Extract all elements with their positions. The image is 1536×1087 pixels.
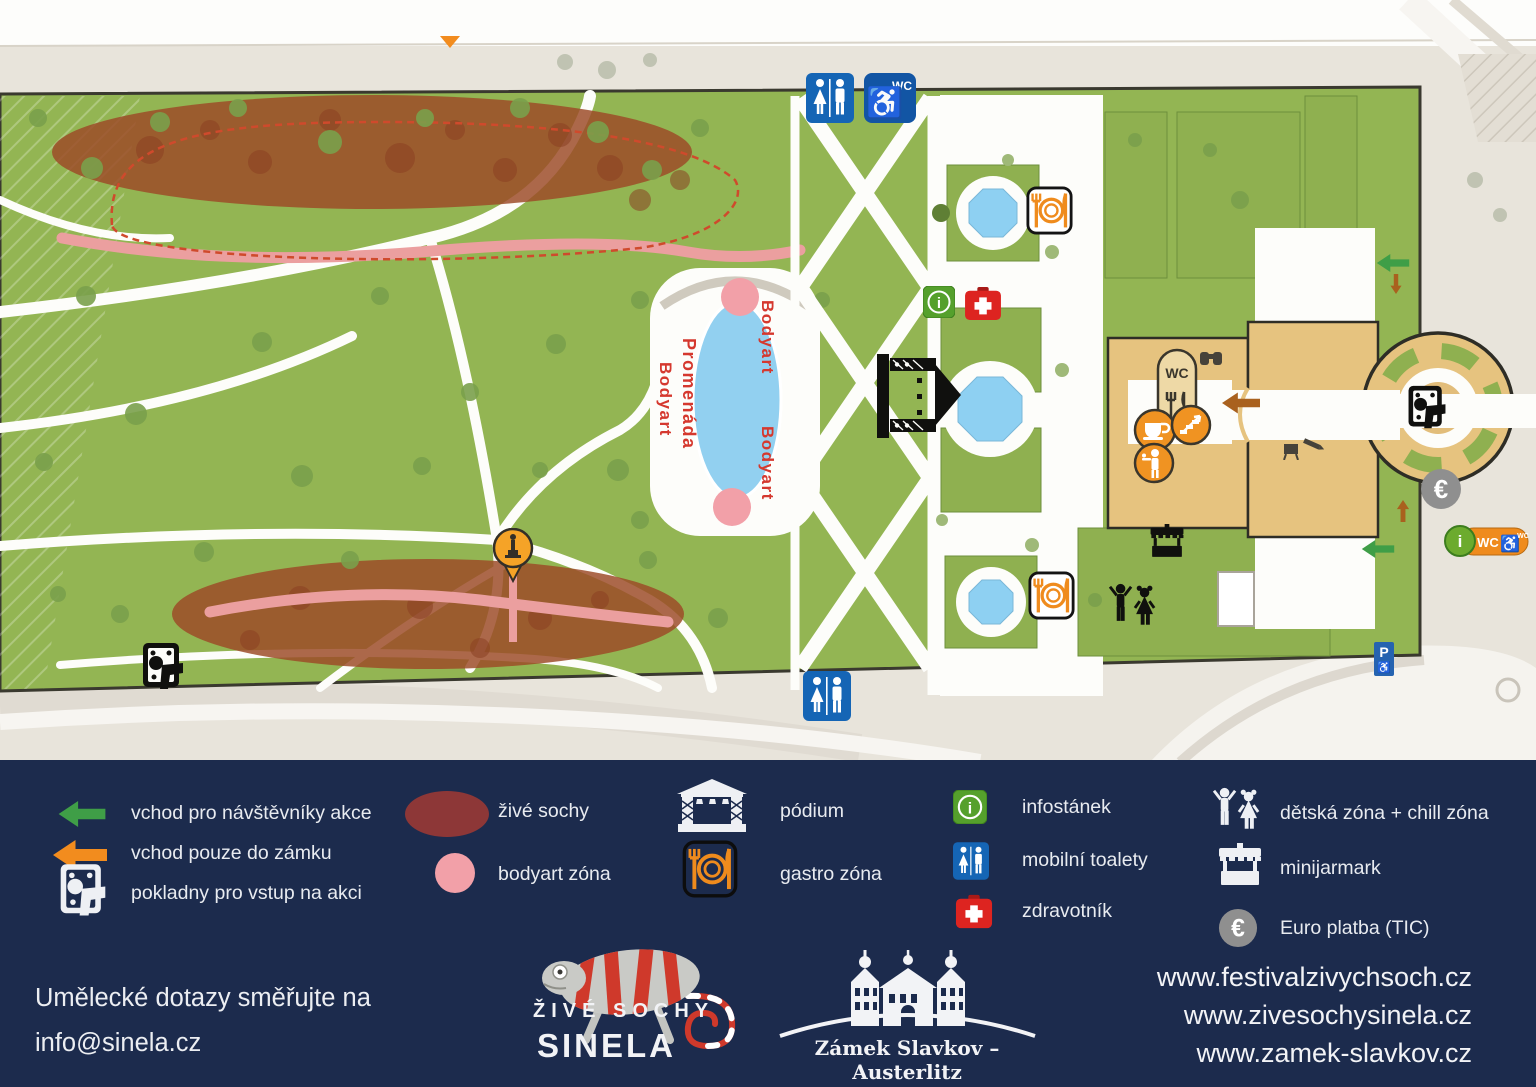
url-sinela: www.zivesochysinela.cz [1157, 996, 1472, 1034]
legend-label-bodyart: bodyart zóna [498, 863, 611, 886]
legend-mini-market-icon [1218, 843, 1262, 889]
legend-label-entry-visitors: vchod pro návštěvníky akce [131, 802, 372, 825]
accessible-toilet-icon-north: WC ♿ [864, 73, 916, 123]
legend-kids-zone-icon [1212, 786, 1264, 834]
svg-text:WC: WC [1165, 365, 1188, 381]
entrance-arrow-ne-green [1376, 254, 1410, 272]
info-wc-pill: i WC ♿ WC [1444, 524, 1530, 558]
zamek-slavkov-logo [775, 938, 1040, 1038]
entrance-arrow-se-brown [1384, 500, 1406, 538]
legend-medic-icon [955, 894, 993, 930]
entrance-arrow-se-green [1360, 540, 1396, 558]
legend-stage-icon [677, 779, 747, 833]
gastro-zone-icon-north [1026, 186, 1073, 235]
url-zamek: www.zamek-slavkov.cz [1157, 1034, 1472, 1072]
svg-text:i: i [937, 295, 941, 312]
mini-market-icon-map [1148, 524, 1186, 560]
svg-text:i: i [1458, 532, 1463, 551]
svg-text:♿: ♿ [1377, 661, 1391, 674]
legend-bodyart-icon [434, 852, 476, 894]
url-festival: www.festivalzivychsoch.cz [1157, 958, 1472, 996]
map-label-bodyart-top: Bodyart [757, 300, 777, 375]
toilets-icon-north [806, 73, 854, 123]
legend-label-living-statues: živé sochy [498, 800, 589, 823]
ticket-office-icon-castle [1404, 384, 1450, 432]
bodyart-spot-south [713, 488, 751, 526]
contact-line1: Umělecké dotazy směřujte na [35, 976, 371, 1021]
map-label-bodyart-left: Bodyart [655, 362, 675, 437]
legend-info-icon: i [953, 790, 987, 824]
legend-toilets-icon [953, 842, 989, 880]
easel-icon [1282, 442, 1300, 460]
legend-euro-icon: € [1218, 908, 1258, 948]
map-label-promenada: Promenáda [678, 338, 699, 450]
legend-label-stage: pódium [780, 800, 844, 823]
contact-note: Umělecké dotazy směřujte na info@sinela.… [35, 976, 371, 1066]
entrance-arrow-top-orange [440, 36, 460, 48]
legend-label-euro: Euro platba (TIC) [1280, 917, 1430, 940]
festival-map-poster: Bodyart Promenáda Bodyart Bodyart WC ♿ i [0, 0, 1536, 1087]
entrance-arrow-ne-brown [1392, 274, 1412, 306]
euro-payment-icon-map: € [1420, 468, 1462, 510]
statue-landmark-pin [491, 528, 535, 586]
svg-text:P: P [1379, 644, 1388, 660]
legend-label-entry-castle: vchod pouze do zámku [131, 842, 332, 865]
contact-email: info@sinela.cz [35, 1021, 371, 1066]
legend-label-kids-zone: dětská zóna + chill zóna [1280, 802, 1489, 825]
gastro-zone-icon-south [1028, 571, 1075, 620]
legend-living-statues-icon [404, 790, 490, 838]
info-stand-icon-map: i [923, 286, 955, 318]
svg-text:WC: WC [1517, 533, 1529, 540]
legend-label-toilets: mobilní toalety [1022, 849, 1148, 872]
legend-label-info: infostánek [1022, 796, 1111, 819]
binoculars-icon [1200, 350, 1222, 366]
legend-label-medic: zdravotník [1022, 900, 1112, 923]
legend-label-gastro: gastro zóna [780, 863, 882, 886]
svg-text:€: € [1434, 474, 1448, 504]
kids-zone-icon-map [1108, 582, 1160, 630]
legend-label-ticket-offices: pokladny pro vstup na akci [131, 882, 362, 905]
ticket-office-icon-west [140, 641, 186, 693]
pencil-icon [1300, 436, 1326, 454]
first-aid-icon-map [963, 287, 1003, 321]
bodyart-spot-north [721, 278, 759, 316]
waiter-service-icon [1133, 442, 1175, 484]
stairs-icon [1170, 404, 1212, 446]
legend-ticket-office-icon [57, 862, 109, 920]
park-map [0, 0, 1536, 762]
entrance-arrow-castle-west [1222, 392, 1260, 414]
parking-sign: P ♿ [1374, 642, 1394, 676]
website-urls: www.festivalzivychsoch.cz www.zivesochys… [1157, 958, 1472, 1072]
legend-label-mini-market: minijarmark [1280, 857, 1381, 880]
toilets-icon-south [803, 671, 851, 721]
svg-text:€: € [1231, 916, 1245, 943]
map-label-bodyart-bottom: Bodyart [757, 426, 777, 501]
sinela-logo-line2: SINELA [537, 1027, 676, 1065]
svg-text:i: i [968, 800, 972, 817]
svg-text:♿: ♿ [866, 85, 903, 120]
legend-gastro-icon [682, 840, 738, 898]
sinela-logo-line1: ŽIVÉ SOCHY [533, 1000, 714, 1023]
zamek-slavkov-caption: Zámek Slavkov – Austerlitz [772, 1036, 1042, 1084]
svg-text:WC: WC [1477, 535, 1499, 550]
legend-green-arrow-icon [53, 801, 111, 827]
